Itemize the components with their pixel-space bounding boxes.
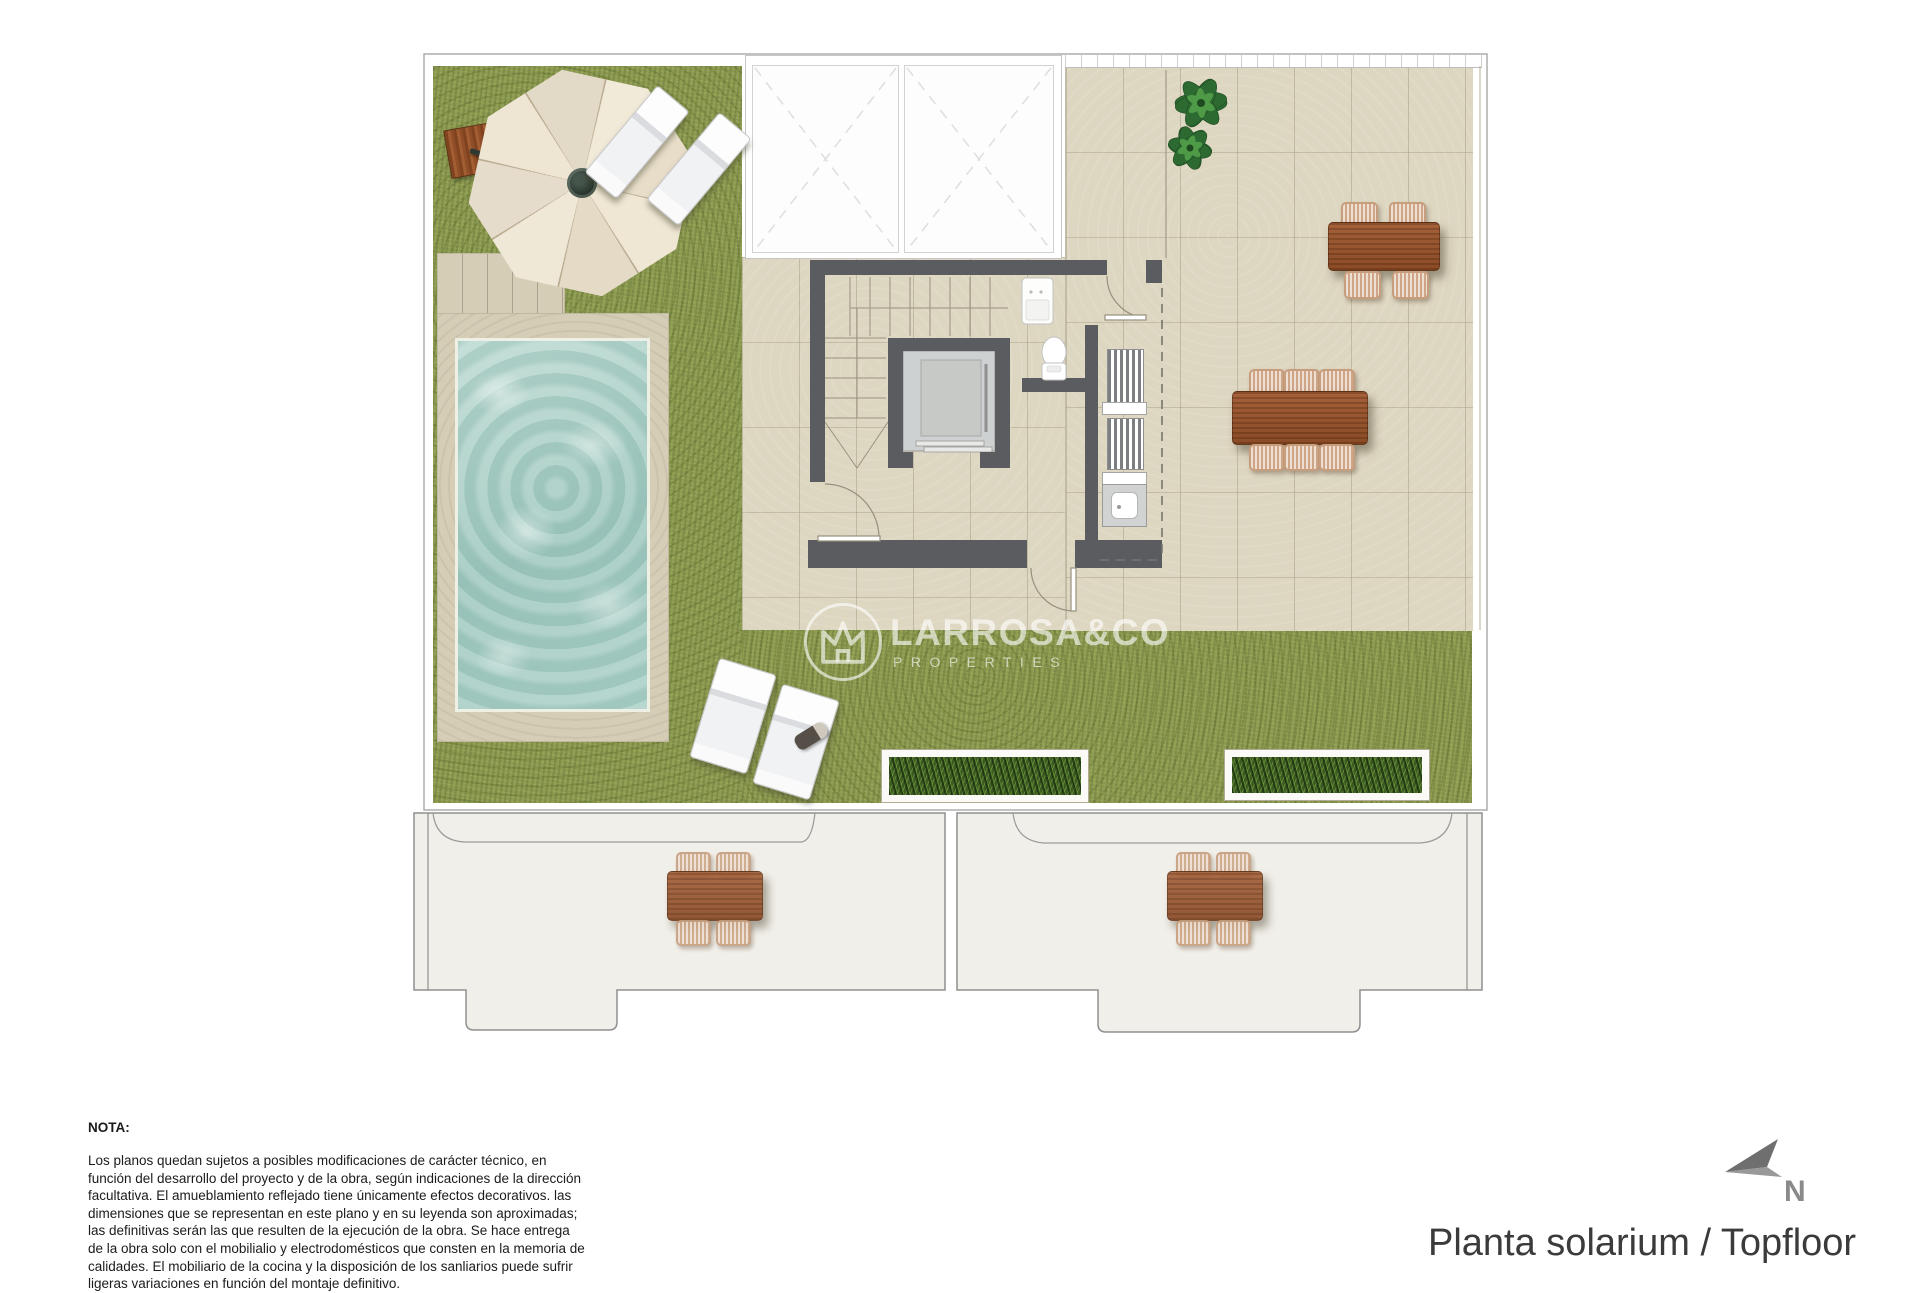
dining-table	[667, 871, 763, 921]
crown-house-logo-icon	[804, 603, 882, 681]
dining-chair	[1249, 444, 1285, 471]
dining-chair	[716, 920, 751, 946]
closet-shelf	[1102, 402, 1147, 415]
sink-basin	[1111, 492, 1138, 519]
door-arc-north	[1107, 276, 1146, 318]
dining-chair	[1216, 920, 1251, 946]
installation-louver-unit	[1107, 349, 1144, 403]
north-label: N	[1784, 1175, 1806, 1209]
potted-plant-icon	[1150, 60, 1260, 190]
page-title: Planta solarium / Topfloor	[1428, 1222, 1856, 1265]
note-body: Los planos quedan sujetos a posibles mod…	[88, 1152, 588, 1293]
brand-watermark: LARROSA&CO PROPERTIES	[800, 598, 1130, 693]
sink-drain	[1117, 505, 1121, 509]
dining-table	[1167, 871, 1263, 921]
dining-chair	[676, 920, 711, 946]
elevator	[903, 351, 995, 452]
door-arc-stairhall	[825, 484, 879, 538]
outdoor-sink-unit	[1102, 484, 1147, 527]
dining-chair	[1319, 444, 1355, 471]
note-heading: NOTA:	[88, 1120, 130, 1135]
dining-table	[1328, 222, 1440, 271]
dining-chair	[1344, 271, 1381, 299]
dining-chair	[1392, 271, 1429, 299]
toilet	[1042, 337, 1066, 380]
washbasin-cabinet	[1022, 278, 1053, 324]
installation-louver-unit	[1107, 418, 1144, 470]
watermark-brand-text: LARROSA&CO	[890, 612, 1170, 654]
dining-table	[1232, 391, 1368, 445]
dining-chair	[1176, 920, 1211, 946]
watermark-subtitle-text: PROPERTIES	[893, 654, 1068, 670]
lower-floor-outline-layer	[400, 800, 1510, 1050]
floorplan-page: { "footer": { "title": "Planta solarium …	[0, 0, 1920, 1280]
dining-chair	[1284, 444, 1320, 471]
stair-direction-arrow	[825, 422, 888, 468]
